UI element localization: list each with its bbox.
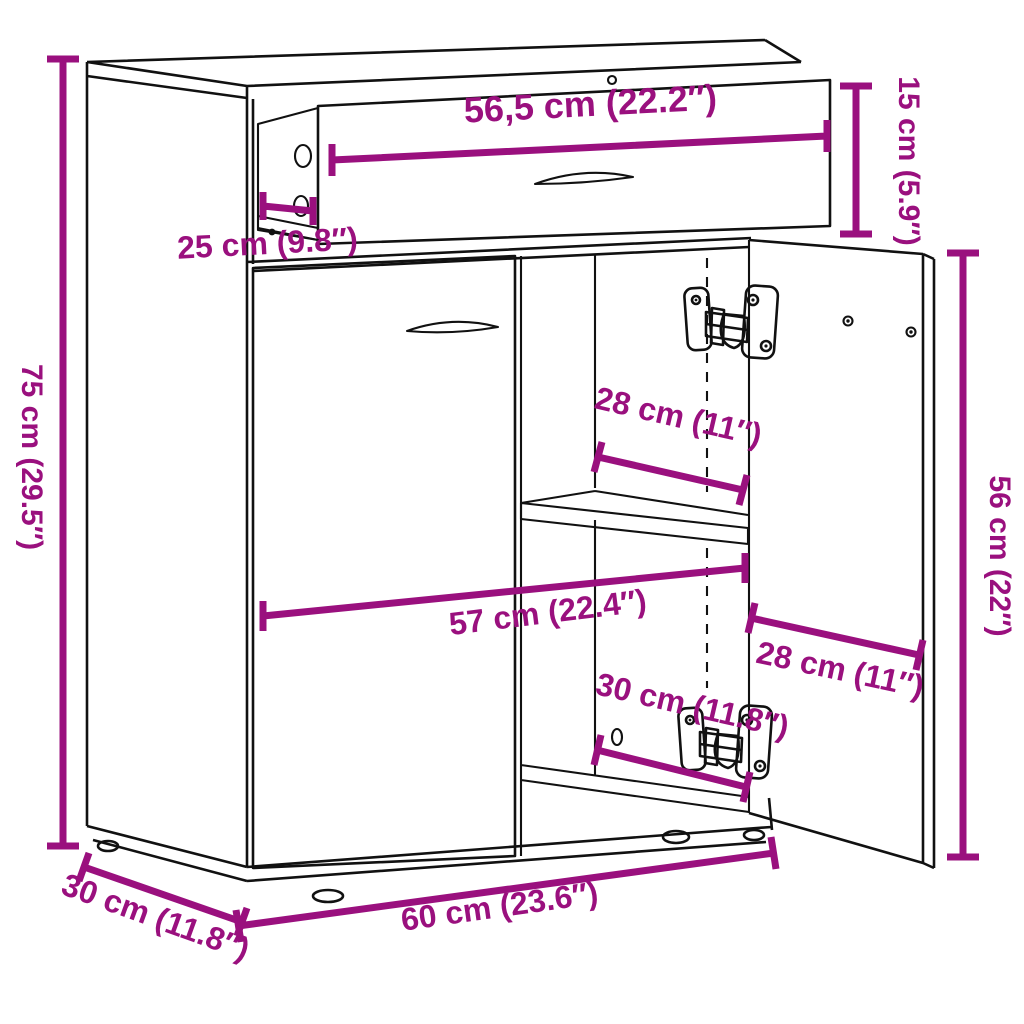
- dim-drawer-height: 15 cm (5.9″): [840, 76, 925, 245]
- dim-door-height: 56 cm (22″): [947, 253, 1016, 857]
- furniture-dimension-diagram: 56,5 cm (22.2″) 15 cm (5.9″) 25 cm (9.8″…: [0, 0, 1024, 1024]
- drawer-handle: [535, 173, 633, 184]
- drawer-side-panel: [258, 108, 318, 240]
- dimension-label-door-height: 56 cm (22″): [983, 475, 1016, 636]
- left-door: [253, 256, 515, 868]
- door-handle: [407, 322, 498, 332]
- left-door-outline: [253, 256, 515, 868]
- right-door-open: [749, 240, 934, 868]
- drawer-side-hole: [295, 145, 311, 167]
- shelf: [521, 491, 748, 544]
- dim-cabinet-width: 60 cm (23.6″): [236, 837, 776, 942]
- door-screw: [846, 319, 849, 322]
- dimension-label-door-width: 28 cm (11″): [753, 634, 927, 705]
- hinge-top: [684, 285, 779, 359]
- dimension-label-cabinet-width: 60 cm (23.6″): [399, 874, 601, 937]
- diagram-canvas: 56,5 cm (22.2″) 15 cm (5.9″) 25 cm (9.8″…: [0, 0, 1024, 1024]
- dimension-label-lower-compartment-height: 30 cm (11.8″): [593, 666, 793, 745]
- dim-interior-width: 57 cm (22.4″): [263, 553, 745, 642]
- door-screw: [909, 330, 912, 333]
- shelf-pin-hole: [612, 729, 622, 745]
- dim-compartment-width: 28 cm (11″): [592, 380, 766, 505]
- dim-cabinet-depth: 30 cm (11.8″): [57, 853, 254, 967]
- dim-cabinet-height: 75 cm (29.5″): [15, 59, 79, 846]
- dim-drawer-depth: 25 cm (9.8″): [176, 192, 358, 266]
- dim-drawer-width: 56,5 cm (22.2″): [332, 76, 827, 176]
- cabinet-drawing: [87, 40, 934, 902]
- dimension-label-cabinet-height: 75 cm (29.5″): [15, 364, 48, 550]
- dimension-label-drawer-height: 15 cm (5.9″): [892, 76, 925, 245]
- dimension-label-compartment-width: 28 cm (11″): [592, 380, 766, 453]
- dimension-label-drawer-width: 56,5 cm (22.2″): [463, 76, 718, 130]
- carcass-outline: [87, 40, 801, 881]
- dim-door-width: 28 cm (11″): [748, 603, 927, 705]
